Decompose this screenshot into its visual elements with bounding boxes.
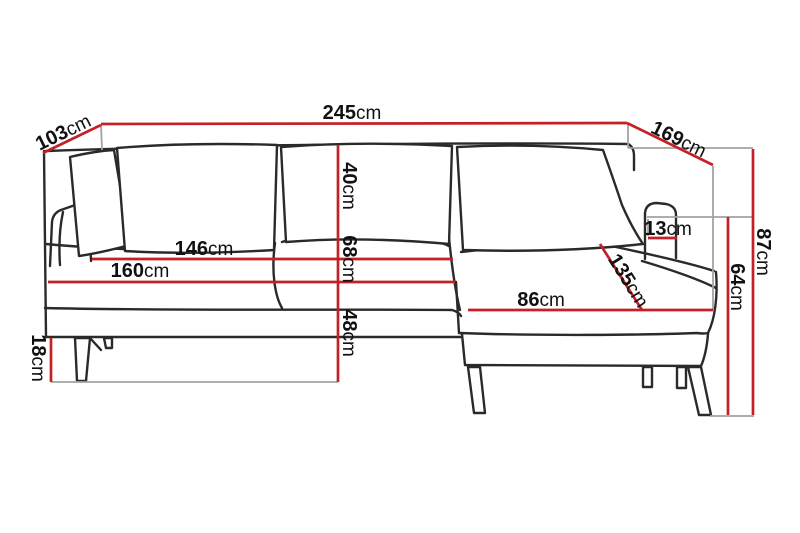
ref-left-corner: [101, 125, 102, 150]
chaise-cushion-left-edge: [456, 282, 459, 333]
dim-label-back-to-seat-height: 68cm: [338, 235, 360, 283]
chaise-cushion-bottom-edge: [459, 333, 708, 335]
dim-label-chaise-width: 86cm: [517, 289, 565, 311]
seat-cushion-division: [273, 243, 282, 308]
seat-chaise-junction: [449, 238, 460, 310]
left-armrest-seam: [59, 212, 63, 265]
dim-label-arm-side-height: 64cm: [726, 263, 748, 311]
dim-label-cushion-width: 146cm: [175, 238, 234, 260]
dim-label-total-height: 87cm: [752, 228, 774, 276]
seat-platform-edge: [45, 308, 461, 316]
dim-label-armrest-width: 13cm: [644, 218, 692, 240]
dim-label-leg-height: 18cm: [27, 334, 49, 382]
chaise-leg-back-1: [643, 367, 652, 387]
back-pillow-chaise: [457, 146, 643, 251]
sofa-dimension-figure: 245cm 103cm 169cm 87cm 64cm 40cm 68cm 48…: [0, 0, 800, 533]
chaise-leg-back-2: [677, 367, 686, 388]
diagram-canvas: 245cm 103cm 169cm 87cm 64cm 40cm 68cm 48…: [0, 0, 800, 533]
chaise-leg-front-right: [688, 367, 711, 415]
dim-label-backrest-height: 40cm: [338, 162, 360, 210]
chaise-arm-side-seam: [642, 261, 716, 288]
sofa-leg-front-left: [75, 338, 90, 381]
chaise-leg-front-left: [468, 367, 485, 413]
dim-label-seat-width: 160cm: [111, 260, 170, 282]
chaise-base: [462, 334, 708, 366]
back-pillow-2: [281, 144, 452, 244]
sofa-leg-hook: [104, 338, 112, 348]
back-pillow-1: [117, 144, 277, 253]
dim-label-seat-front-height: 48cm: [338, 309, 360, 357]
dim-label-total-width: 245cm: [323, 102, 382, 124]
dim-label-chaise-depth-right: 169cm: [647, 117, 709, 163]
sofa-leg-brace: [90, 338, 101, 350]
